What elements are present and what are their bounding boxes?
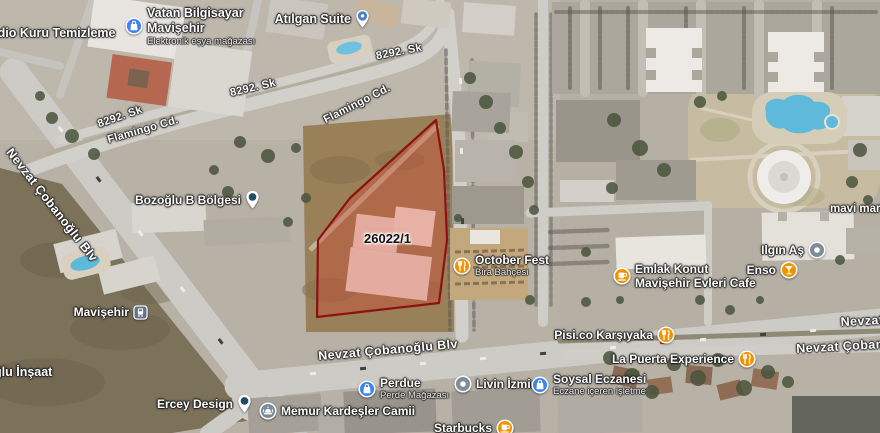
poi-name: La Puerta Experience bbox=[612, 352, 734, 366]
poi-mavi-market[interactable]: mavi market bbox=[830, 203, 880, 215]
poi-oglu-insaat[interactable]: ğlu İnşaat bbox=[0, 365, 52, 379]
poi-enso[interactable]: Enso bbox=[747, 261, 798, 279]
street-label-nevzat-cobanoglu-blv-bottom: Nevzat Çobanoğlu Blv bbox=[318, 337, 459, 363]
poi-subtitle: Eczane içeren işletme bbox=[553, 386, 646, 397]
street-label-nevzat-right-edge: Nevzat bbox=[840, 313, 880, 329]
poi-starbucks[interactable]: Starbucks bbox=[434, 419, 514, 433]
satellite-map-view[interactable]: 8292. Sk 8292. Sk 8292. Sk Flamingo Cd. … bbox=[0, 0, 880, 433]
poi-name: October Fest bbox=[475, 253, 549, 267]
poi-name: Ercey Design bbox=[157, 397, 233, 411]
poi-subtitle: Elektronik eşya mağazası bbox=[147, 36, 255, 47]
parcel-number-label: 26022/1 bbox=[364, 231, 411, 246]
poi-ercey-design[interactable]: Ercey Design bbox=[157, 394, 252, 414]
street-label-8292-sk-2: 8292. Sk bbox=[229, 77, 277, 99]
poi-memur-kardesler-camii[interactable]: Memur Kardeşler Camii bbox=[259, 402, 415, 420]
poi-bozoglu-b-bolgesi[interactable]: Bozoğlu B Bölgesi bbox=[135, 190, 260, 210]
poi-name-line1: Vatan Bilgisayar bbox=[147, 6, 255, 21]
poi-name: Livin İzmir bbox=[476, 377, 535, 391]
transit-icon bbox=[133, 305, 148, 320]
poi-name: Starbucks bbox=[434, 421, 492, 433]
cafe-icon bbox=[613, 267, 631, 285]
poi-soysal-eczanesi[interactable]: Soysal Eczanesi Eczane içeren işletme bbox=[531, 372, 646, 397]
poi-name-line1: Emlak Konut bbox=[635, 262, 756, 276]
bar-icon bbox=[780, 261, 798, 279]
poi-name: Bozoğlu B Bölgesi bbox=[135, 193, 241, 207]
poi-ilgin-as[interactable]: Ilgın Aş bbox=[761, 241, 826, 259]
poi-name: Mavişehir bbox=[74, 305, 129, 319]
poi-name: Memur Kardeşler Camii bbox=[281, 404, 415, 418]
poi-name: Pisi.co Karşıyaka bbox=[554, 328, 653, 342]
poi-livin-izmir[interactable]: Livin İzmir bbox=[454, 375, 535, 393]
restaurant-icon bbox=[738, 350, 756, 368]
place-pin-icon bbox=[237, 394, 252, 414]
shopping-bag-icon bbox=[531, 376, 549, 394]
street-label-8292-sk-3: 8292. Sk bbox=[375, 42, 423, 63]
cafe-icon bbox=[496, 419, 514, 433]
poi-name-line2: Mavişehir bbox=[147, 21, 255, 36]
poi-perdue[interactable]: Perdue Perde Mağazası bbox=[358, 376, 449, 401]
poi-october-fest[interactable]: October Fest Bira Bahçesi bbox=[453, 253, 549, 278]
poi-pisi-co-karsiyaka[interactable]: Pisi.co Karşıyaka bbox=[554, 326, 675, 344]
poi-atilgan-suite[interactable]: Atılgan Suite bbox=[275, 9, 370, 29]
restaurant-icon bbox=[453, 257, 471, 275]
labels-layer: 8292. Sk 8292. Sk 8292. Sk Flamingo Cd. … bbox=[0, 0, 880, 433]
poi-subtitle: Bira Bahçesi bbox=[475, 267, 549, 278]
mosque-icon bbox=[259, 402, 277, 420]
street-label-nevzat-cobanoglu-blv-left: Nevzat Çobanoğlu Blv bbox=[3, 146, 100, 265]
poi-name: Ilgın Aş bbox=[761, 243, 804, 257]
lodging-pin-icon bbox=[355, 9, 370, 29]
poi-name: Soysal Eczanesi bbox=[553, 372, 646, 386]
poi-subtitle: Perde Mağazası bbox=[380, 390, 449, 401]
restaurant-icon bbox=[657, 326, 675, 344]
street-label-flamingo-cd-2: Flamingo Cd. bbox=[322, 82, 393, 126]
place-pin-icon bbox=[245, 190, 260, 210]
poi-name: Enso bbox=[747, 263, 776, 277]
poi-name: Perdue bbox=[380, 376, 449, 390]
street-label-nevzat-cobanog-right-edge: Nevzat Çobanoğ bbox=[796, 336, 880, 355]
poi-la-puerta-experience[interactable]: La Puerta Experience bbox=[612, 350, 756, 368]
shopping-bag-icon bbox=[358, 380, 376, 398]
poi-kuru-temizleme[interactable]: ndio Kuru Temizleme bbox=[0, 26, 115, 40]
poi-vatan-bilgisayar[interactable]: Vatan Bilgisayar Mavişehir Elektronik eş… bbox=[125, 6, 255, 47]
poi-name-line2: Mavişehir Evleri Cafe bbox=[635, 276, 756, 290]
place-dot-icon bbox=[454, 375, 472, 393]
shopping-bag-icon bbox=[125, 17, 143, 35]
poi-mavisehir-station[interactable]: Mavişehir bbox=[74, 305, 148, 320]
poi-name: Atılgan Suite bbox=[275, 12, 351, 27]
place-dot-icon bbox=[808, 241, 826, 259]
poi-emlak-konut-cafe[interactable]: Emlak Konut Mavişehir Evleri Cafe bbox=[613, 262, 756, 290]
